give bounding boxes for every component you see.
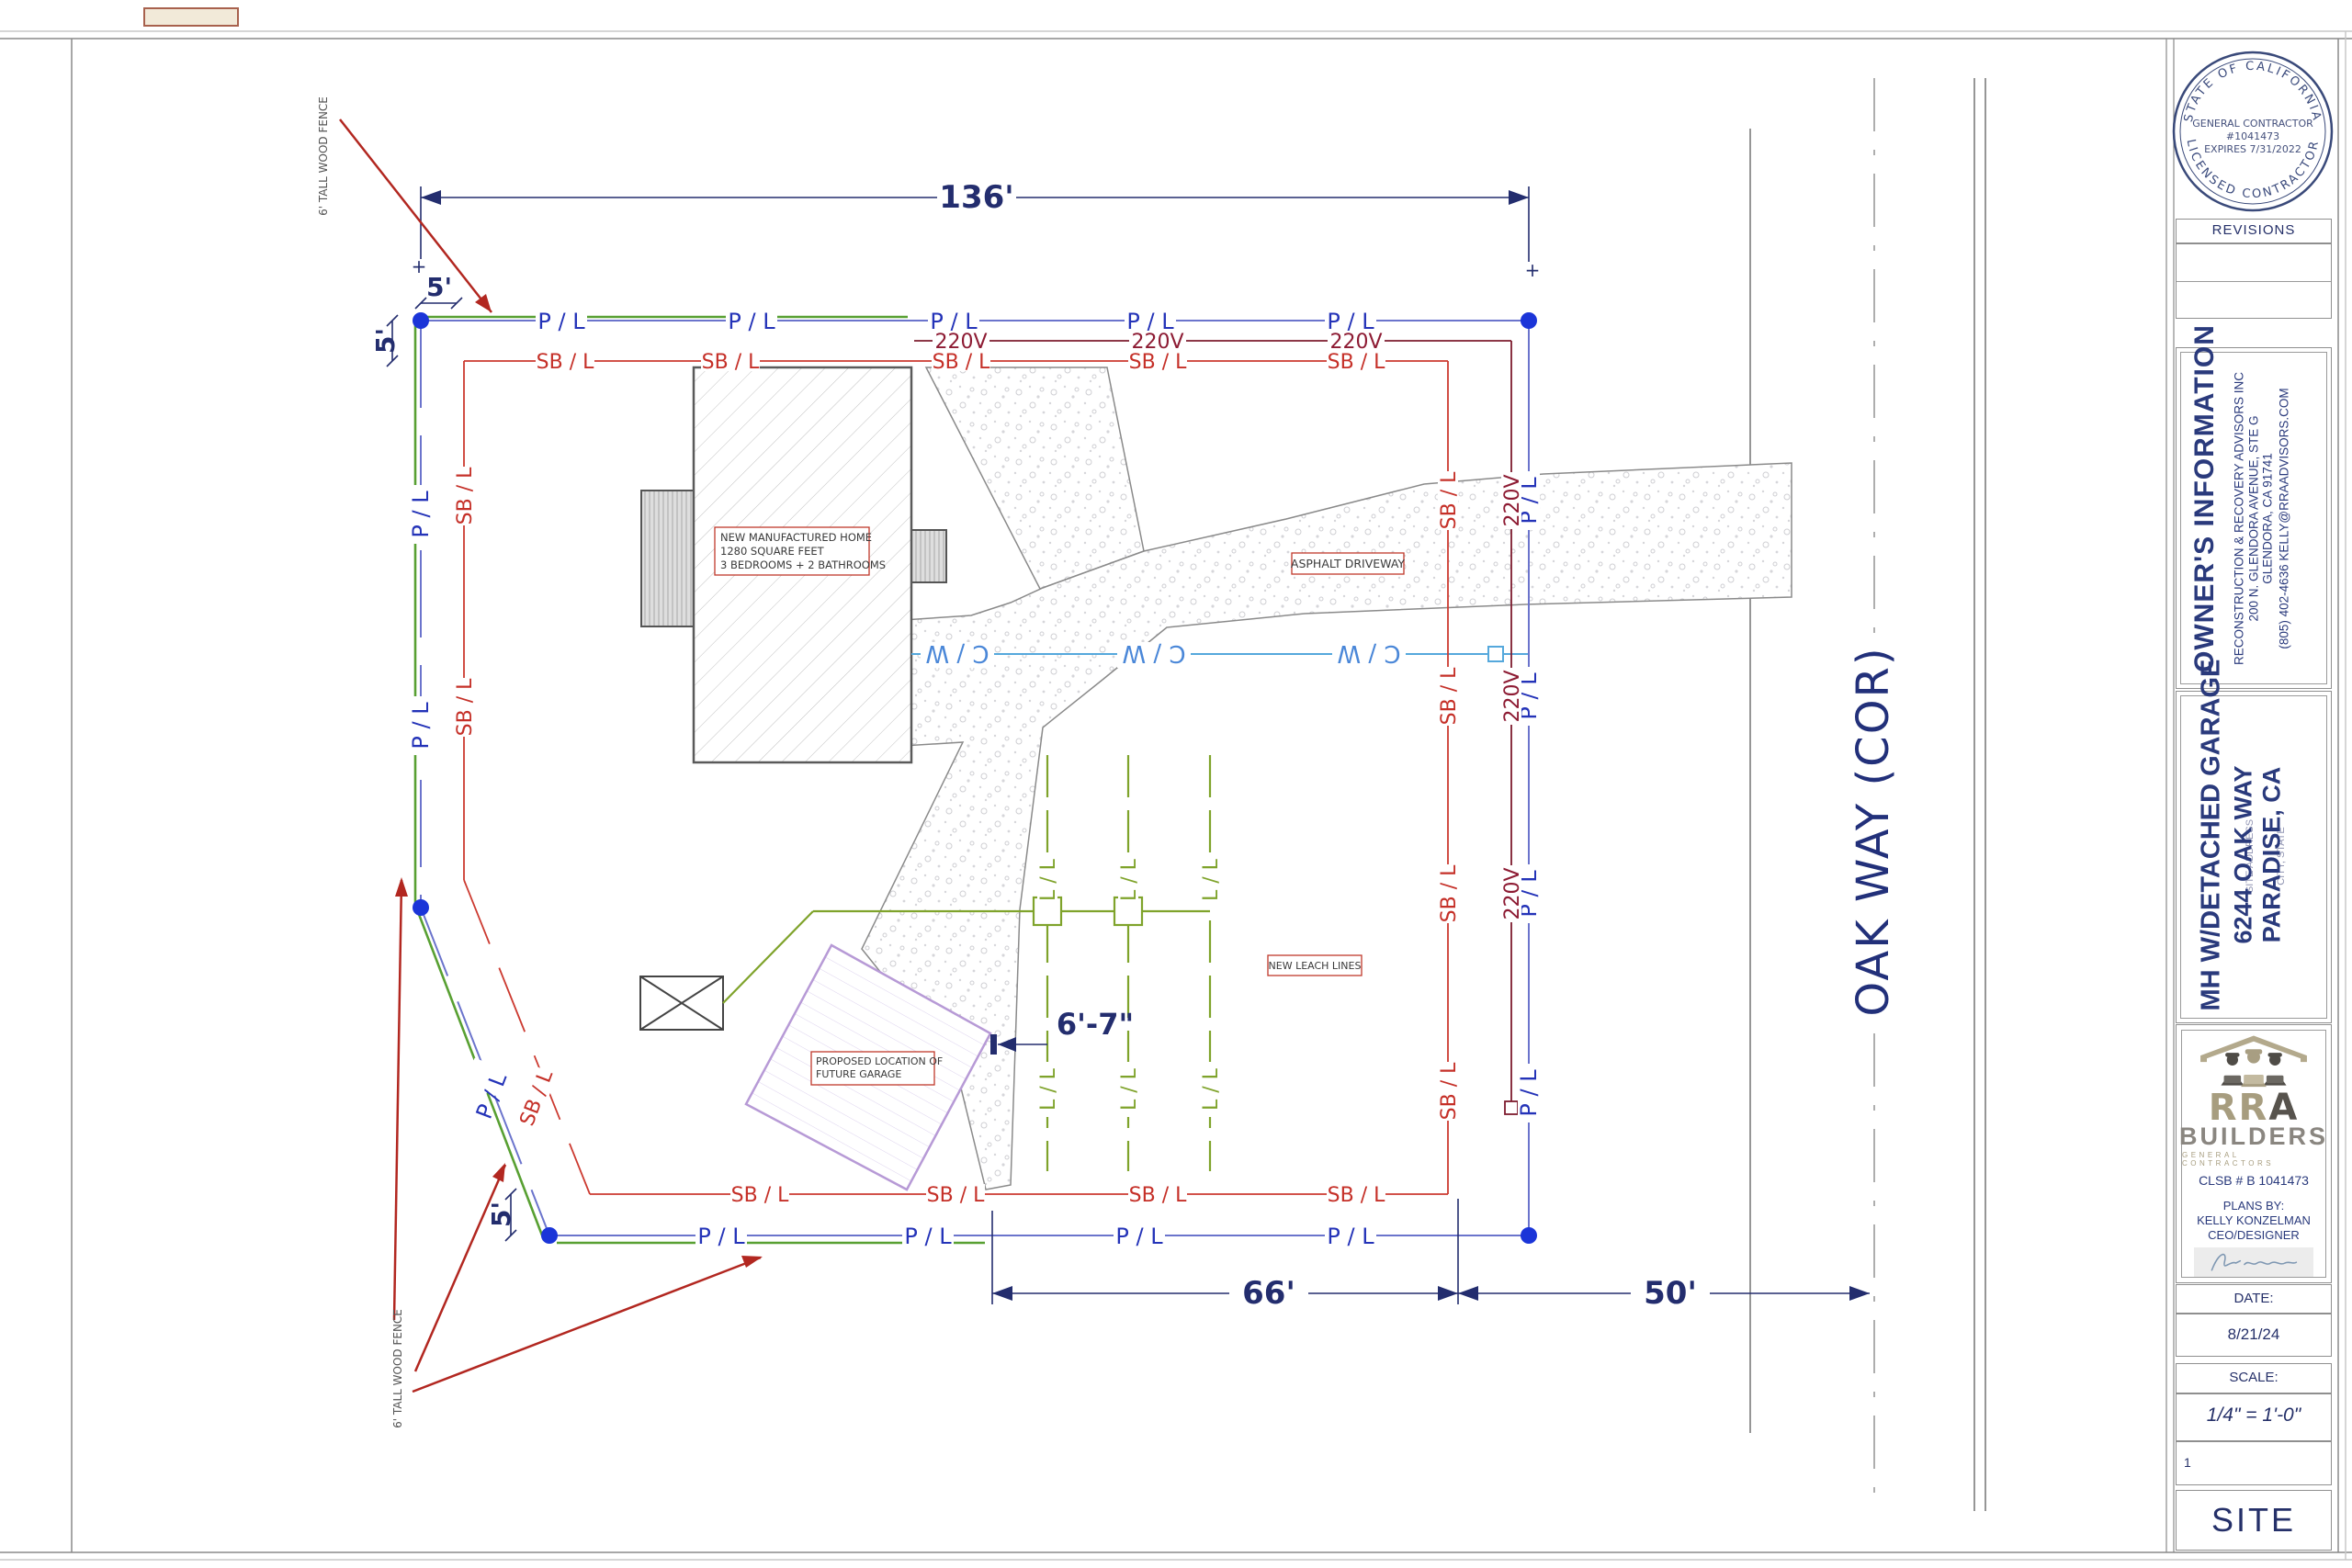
sbl-label: SB / L — [1328, 1184, 1385, 1207]
sbl-label: SB / L — [454, 678, 477, 736]
left-porch — [641, 491, 695, 626]
cw-label: C / W — [925, 639, 989, 667]
date-value-box: 8/21/24 — [2176, 1314, 2332, 1357]
scale-value: 1/4" = 1'-0" — [2177, 1404, 2331, 1427]
date-label: DATE: — [2177, 1291, 2331, 1306]
street-name: OAK WAY (COR) — [1848, 646, 1899, 1016]
garage-note-box: PROPOSED LOCATION OF FUTURE GARAGE — [811, 1052, 943, 1085]
pl-label: P / L — [1516, 1069, 1542, 1117]
pl-label: P / L — [408, 491, 434, 538]
dim-136: 136' — [939, 179, 1013, 216]
water-meter — [1488, 647, 1503, 661]
owner-line-4: (805) 402-4636 KELLY@RRAADVISORS.COM — [2278, 367, 2291, 671]
revisions-row-divider — [2177, 281, 2331, 282]
builder-inner: RRA BUILDERS GENERAL CONTRACTORS CLSB # … — [2181, 1030, 2326, 1278]
house-note-line: 3 BEDROOMS + 2 BATHROOMS — [720, 558, 886, 571]
scale-header: SCALE: — [2176, 1363, 2332, 1393]
sbl-labels-bottom: SB / L SB / L SB / L SB / L — [730, 1184, 1385, 1207]
sbl-label: SB / L — [702, 351, 760, 374]
sheet-number: 1 — [2184, 1455, 2191, 1470]
220v-label: 220V — [1501, 474, 1524, 526]
dim-5-bottom: 5' — [486, 1201, 516, 1227]
street-label: OAK WAY (COR) — [1845, 634, 1904, 1029]
sbl-label: SB / L — [1438, 1062, 1461, 1120]
220v-label: 220V — [1501, 867, 1524, 919]
sbl-label: SB / L — [933, 351, 990, 374]
sbl-label: SB / L — [1129, 1184, 1187, 1207]
project-address: 6244 OAK WAY — [2230, 699, 2258, 1011]
house-note-line: 1280 SQUARE FEET — [720, 545, 825, 558]
designer-name: KELLY KONZELMAN — [2197, 1213, 2311, 1228]
sbl-label: SB / L — [927, 1184, 985, 1207]
dim-6-7: 6'-7" — [1057, 1007, 1134, 1042]
dim-5-left: 5' — [370, 328, 401, 354]
driveway-pad — [926, 367, 1144, 589]
cw-labels: C / W C / W C / W — [921, 639, 1406, 668]
driveway-label: ASPHALT DRIVEWAY — [1291, 557, 1406, 570]
contractor-stamp: STATE OF CALIFORNIA LICENSED CONTRACTOR … — [2174, 52, 2332, 210]
leach-label: NEW LEACH LINES — [1269, 960, 1362, 972]
plus-mark: + — [412, 255, 427, 277]
angled-labels: P / L SB / L — [454, 1058, 559, 1130]
sheet-number-box: 1 — [2176, 1441, 2332, 1485]
house-note-line: NEW MANUFACTURED HOME — [720, 531, 872, 544]
stamp-line1: GENERAL CONTRACTOR — [2192, 118, 2313, 130]
ll-label: L / L — [1118, 858, 1141, 901]
sheet-border — [0, 31, 2352, 1560]
sbl-label: SB / L — [1438, 864, 1461, 922]
owner-line-2: 200 N. GLENDORA AVENUE, STE G — [2247, 367, 2261, 671]
revisions-table — [2176, 243, 2332, 319]
plus-mark: + — [1525, 259, 1541, 281]
sbl-label: SB / L — [1129, 351, 1187, 374]
sbl-label: SB / L — [731, 1184, 789, 1207]
ll-label: L / L — [1037, 1067, 1060, 1111]
cw-label: C / W — [1122, 639, 1185, 667]
rra-logo — [2185, 1034, 2323, 1091]
pl-label: P / L — [1115, 1224, 1163, 1249]
house-note-box: NEW MANUFACTURED HOME 1280 SQUARE FEET 3… — [715, 527, 886, 575]
owner-info-title: OWNER'S INFORMATION — [2189, 360, 2221, 672]
date-header: DATE: — [2176, 1284, 2332, 1314]
ll-label: L / L — [1200, 858, 1223, 901]
scale-label: SCALE: — [2177, 1370, 2331, 1385]
220v-label: 220V — [1501, 670, 1524, 722]
site-plan-svg: P / L P / L P / L P / L P / L 220V 220V … — [0, 0, 2352, 1568]
project-info-box: MH W/DETACHED GARAGE SITE ADDRESS 6244 O… — [2176, 691, 2332, 1023]
pl-label: P / L — [728, 309, 775, 334]
owner-line-1: RECONSTRUCTION & RECOVERY ADVISORS INC — [2233, 367, 2246, 671]
owner-info-box: OWNER'S INFORMATION RECONSTRUCTION & REC… — [2176, 347, 2332, 689]
pl-label: P / L — [904, 1224, 952, 1249]
pl-label: P / L — [697, 1224, 745, 1249]
dim-50: 50' — [1644, 1275, 1697, 1312]
driveway-label-box: ASPHALT DRIVEWAY — [1291, 553, 1406, 574]
logo-general-contractors: GENERAL CONTRACTORS — [2182, 1151, 2325, 1168]
date-value: 8/21/24 — [2177, 1325, 2331, 1344]
revisions-header: REVISIONS — [2176, 219, 2332, 243]
fence-note-top: 6' TALL WOOD FENCE — [317, 96, 330, 216]
septic-tank — [640, 976, 723, 1030]
dim-66: 66' — [1242, 1275, 1295, 1312]
stamp-line3: EXPIRES 7/31/2022 — [2204, 143, 2301, 155]
plan-sheet: P / L P / L P / L P / L P / L 220V 220V … — [0, 0, 2352, 1568]
sbl-labels-left: SB / L SB / L — [454, 467, 477, 737]
pl-label: P / L — [1327, 1224, 1374, 1249]
builder-box: RRA BUILDERS GENERAL CONTRACTORS CLSB # … — [2176, 1024, 2332, 1283]
sbl-label: SB / L — [1438, 471, 1461, 529]
garage-note-line: PROPOSED LOCATION OF — [816, 1055, 943, 1067]
scale-value-box: 1/4" = 1'-0" — [2176, 1393, 2332, 1441]
owner-line-3: GLENDORA, CA 91741 — [2261, 367, 2275, 671]
fence-note-bottom: 6' TALL WOOD FENCE — [391, 1309, 404, 1428]
sbl-label: SB / L — [1438, 667, 1461, 725]
fence-notes: 6' TALL WOOD FENCE 6' TALL WOOD FENCE — [317, 96, 404, 1428]
sheet-name-box: SITE — [2176, 1490, 2332, 1551]
cw-label: C / W — [1337, 639, 1400, 667]
revisions-title: REVISIONS — [2177, 222, 2331, 238]
dim-5-top: 5' — [426, 272, 452, 302]
ll-label: L / L — [1200, 1067, 1223, 1111]
pl-label: P / L — [537, 309, 585, 334]
sbl-label: SB / L — [537, 351, 594, 374]
signature — [2194, 1247, 2313, 1277]
ll-labels: L / L L / L L / L L / L L / L L / L — [1037, 852, 1223, 1117]
logo-builders-text: BUILDERS — [2179, 1124, 2328, 1149]
sbl-label: SB / L — [1328, 351, 1385, 374]
leach-label-box: NEW LEACH LINES — [1268, 955, 1362, 976]
ll-label: L / L — [1118, 1067, 1141, 1111]
garage-note-line: FUTURE GARAGE — [816, 1068, 901, 1080]
project-city: PARADISE, CA — [2258, 699, 2287, 1011]
ll-label: L / L — [1037, 858, 1060, 901]
logo-rra-text: RRA — [2209, 1091, 2300, 1124]
sheet-name: SITE — [2177, 1501, 2331, 1540]
clsb-number: CLSB # B 1041473 — [2199, 1173, 2309, 1188]
logo-workers — [2221, 1049, 2286, 1087]
plans-by-label: PLANS BY: — [2197, 1199, 2311, 1213]
asphalt-driveway — [862, 367, 1792, 1190]
stamp-line2: #1041473 — [2226, 130, 2279, 142]
sbl-label: SB / L — [454, 467, 477, 525]
project-title: MH W/DETACHED GARAGE — [2197, 699, 2227, 1011]
sbl-labels-top: SB / L SB / L SB / L SB / L SB / L — [536, 351, 1385, 374]
pl-label: P / L — [408, 702, 434, 750]
designer-role: CEO/DESIGNER — [2197, 1228, 2311, 1243]
